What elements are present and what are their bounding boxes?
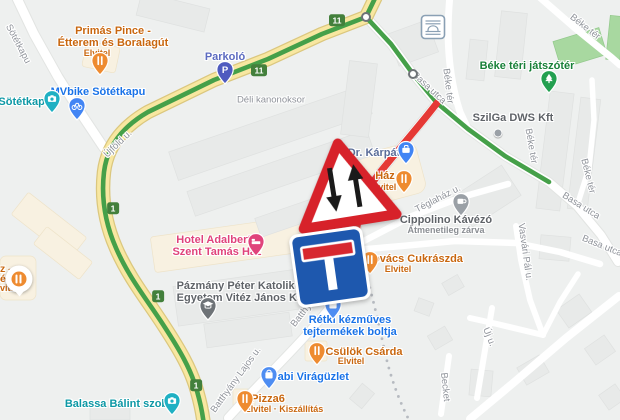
street-label: Déli kanonoksor xyxy=(237,95,305,106)
route-badge: 1 xyxy=(190,379,202,391)
route-waypoint[interactable] xyxy=(408,69,418,79)
cafe-icon xyxy=(452,193,471,218)
poi-label-mvbike-sotetkapu[interactable]: MVbike Sötétkapu xyxy=(51,86,146,98)
poi-label-primas-pince[interactable]: Primás Pince - Étterem és Boralagút xyxy=(58,25,169,49)
route-badge: 11 xyxy=(329,14,345,26)
briefcase-icon xyxy=(397,141,416,166)
school-icon xyxy=(199,297,218,322)
camera-icon xyxy=(43,90,62,115)
tunnel-gate-icon[interactable] xyxy=(421,15,446,40)
restaurant-icon xyxy=(236,390,255,415)
poi-label-szilga-dws-kft[interactable]: SzilGa DWS Kft xyxy=(473,112,554,124)
poi-pin-pazmany-egyetem[interactable] xyxy=(199,297,218,322)
poi-label-retki-kezmuves-bolt[interactable]: Rétki kézműves tejtermékek boltja xyxy=(303,314,397,338)
poi-pin-sotetkapu-poi[interactable] xyxy=(43,90,62,115)
poi-pin-beke-teri-jatszoter[interactable] xyxy=(540,70,559,95)
poi-pin-primas-pince[interactable] xyxy=(91,52,110,77)
parking-icon: P xyxy=(216,61,235,86)
poi-pin-csulok-csarda[interactable] xyxy=(308,342,327,367)
poi-sublabel-csulok-csarda: Elvitel xyxy=(338,356,365,366)
tree-icon xyxy=(540,70,559,95)
route-badge: 1 xyxy=(152,290,164,302)
poi-pin-mvbike-sotetkapu[interactable] xyxy=(68,97,87,122)
selected-poi-balloon[interactable] xyxy=(6,266,33,293)
poi-pin-pizza6[interactable] xyxy=(236,390,255,415)
map-canvas[interactable]: SötétkapuÚjföld u.Déli kanonoksorBasa ut… xyxy=(0,0,620,420)
poi-label-gabi-viraguzlet[interactable]: Gabi Virágüzlet xyxy=(269,371,349,383)
restaurant-icon xyxy=(91,52,110,77)
route-badge: 1 xyxy=(107,202,119,214)
shopping-icon xyxy=(260,366,279,391)
svg-text:P: P xyxy=(222,65,229,76)
restaurant-icon xyxy=(308,342,327,367)
two-way-traffic-warning-sign xyxy=(285,128,402,237)
no-through-road-sign xyxy=(288,225,372,309)
poi-pin-cippolino-kavezo[interactable] xyxy=(452,193,471,218)
poi-sublabel-pizza6: Elvitel · Kiszállítás xyxy=(245,404,324,414)
camera-icon xyxy=(163,392,182,417)
poi-pin-hotel-adalbert[interactable] xyxy=(247,233,266,258)
poi-pin-gabi-viraguzlet[interactable] xyxy=(260,366,279,391)
poi-sublabel-kovacs-cukraszda: Elvitel xyxy=(385,264,412,274)
hotel-icon xyxy=(247,233,266,258)
poi-sublabel-cippolino-kavezo: Átmenetileg zárva xyxy=(407,225,484,235)
poi-pin-dr-karpat[interactable] xyxy=(397,141,416,166)
poi-pin-szilga-dws-kft[interactable] xyxy=(494,129,503,138)
route-badge: 11 xyxy=(251,64,267,76)
poi-label-pazmany-egyetem[interactable]: Pázmány Péter Katolikus Egyetem Vitéz Já… xyxy=(177,280,308,304)
poi-pin-parkolo[interactable]: P xyxy=(216,61,235,86)
poi-label-beke-teri-jatszoter[interactable]: Béke téri játszótér xyxy=(480,60,575,72)
poi-label-kovacs-cukraszda[interactable]: Kovács Cukrászda xyxy=(365,253,463,265)
bike-icon xyxy=(68,97,87,122)
route-waypoint[interactable] xyxy=(361,12,371,22)
restaurant-icon xyxy=(12,272,27,287)
poi-pin-balassa-balint-szobor[interactable] xyxy=(163,392,182,417)
